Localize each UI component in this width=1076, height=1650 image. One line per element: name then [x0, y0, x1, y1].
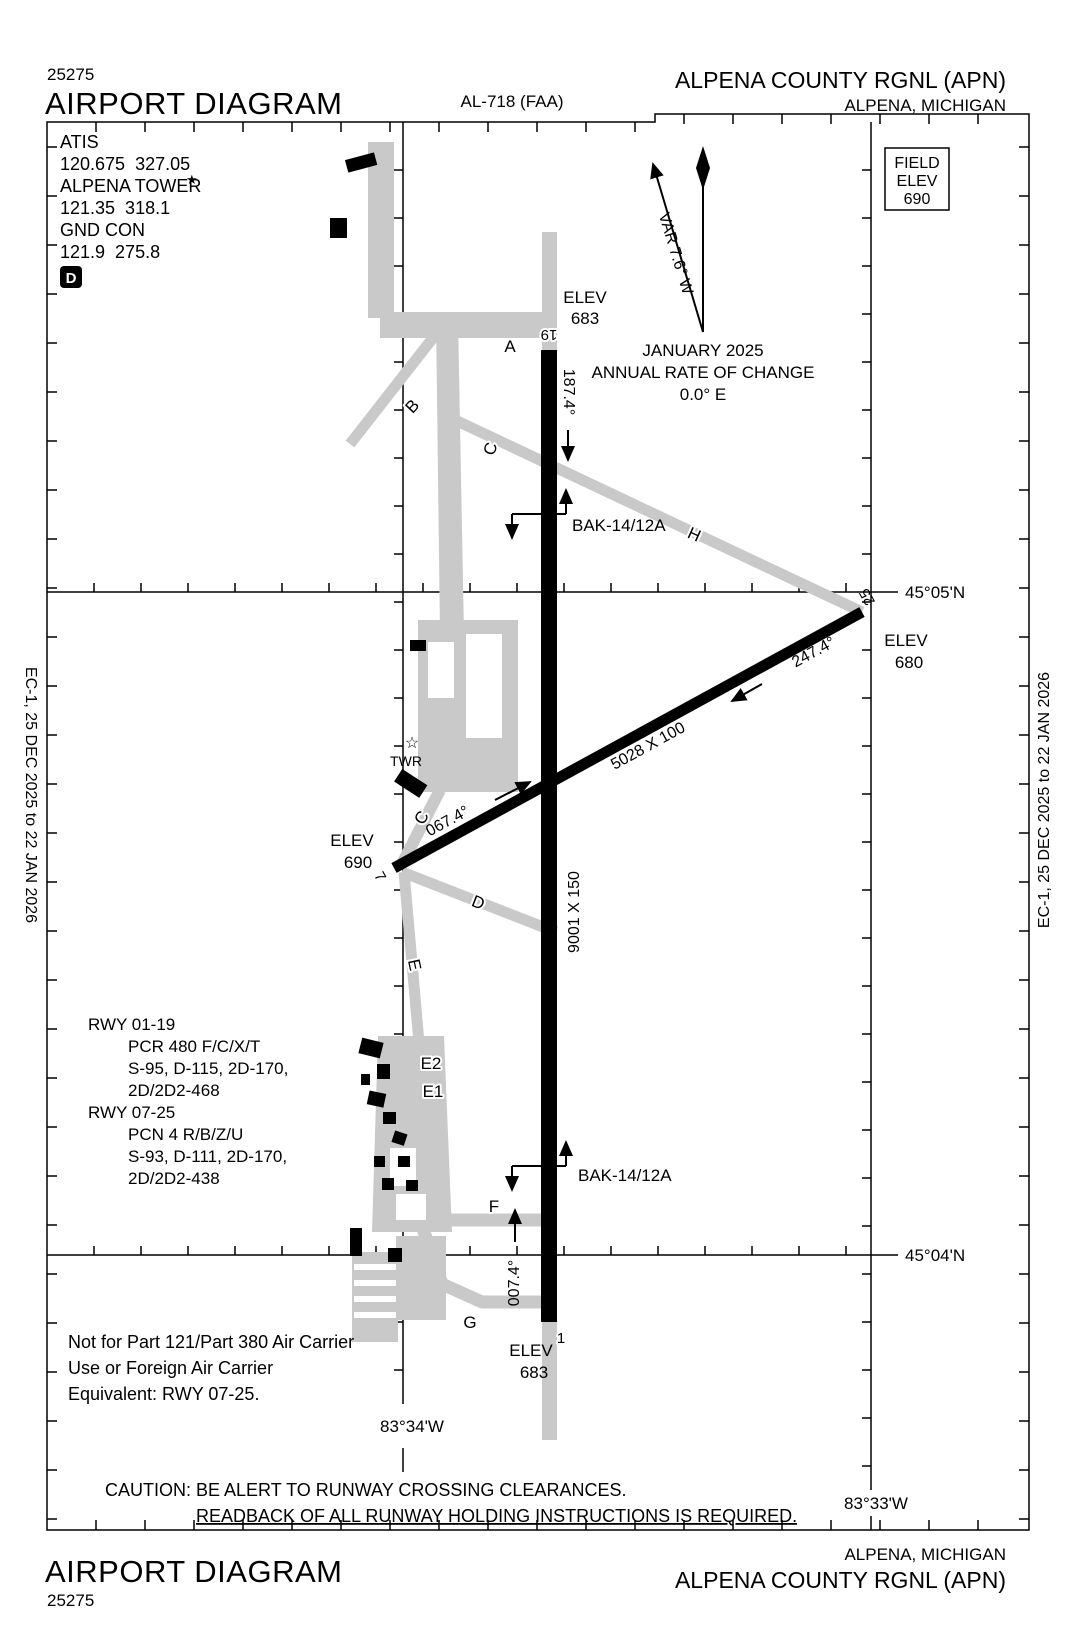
hangar-gap: [354, 1296, 396, 1302]
runway-19-heading: 187.4°: [560, 369, 577, 415]
chart-number-bottom: 25275: [47, 1591, 94, 1610]
procedure-id: AL-718 (FAA): [461, 92, 564, 111]
building: [398, 1156, 410, 1167]
compass-rate-value: 0.0° E: [680, 385, 727, 404]
runway-01-heading: 007.4°: [506, 1260, 523, 1306]
hangar-gap: [354, 1264, 396, 1270]
tower-star-icon: ★: [186, 172, 198, 187]
apron-cutout: [428, 642, 454, 698]
arresting-gear-north-symbol: [512, 490, 566, 538]
runway-01-19: [541, 350, 557, 1322]
taxiway-b-label: B: [402, 396, 424, 417]
airport-diagram-canvas: 25275 AIRPORT DIAGRAM AL-718 (FAA) ALPEN…: [0, 0, 1076, 1650]
elev-north-label: ELEV: [563, 288, 607, 307]
hangar-gap: [354, 1280, 396, 1286]
taxiway-pavement: [350, 142, 862, 1440]
tower-label: ALPENA TOWER: [60, 176, 201, 196]
restriction-line: Not for Part 121/Part 380 Air Carrier: [68, 1332, 354, 1352]
airport-diagram-page: 25275 AIRPORT DIAGRAM AL-718 (FAA) ALPEN…: [0, 0, 1076, 1650]
elev-west-value: 690: [344, 853, 372, 872]
rwy-07-25-data-line: 2D/2D2-438: [128, 1169, 220, 1188]
rwy-01-19-data-label: RWY 01-19: [88, 1015, 175, 1034]
apron-cutout: [396, 1194, 426, 1220]
rwy-01-19-data-line: S-95, D-115, 2D-170,: [128, 1059, 288, 1078]
page-title: AIRPORT DIAGRAM: [45, 86, 342, 121]
city-state-bottom: ALPENA, MICHIGAN: [844, 1545, 1006, 1564]
taxiway-e2-label: E2: [421, 1054, 442, 1073]
longitude-east-label: 83°33'W: [844, 1494, 908, 1513]
taxiway-e1-label: E1: [423, 1082, 444, 1101]
taxiway-a-label: A: [504, 337, 516, 356]
rwy-07-25-data-line: PCN 4 R/B/Z/U: [128, 1125, 243, 1144]
compass-date: JANUARY 2025: [642, 341, 763, 360]
building: [350, 1228, 362, 1256]
true-north-arrowhead-icon: [696, 146, 710, 190]
magnetic-variation-label: VAR 7.6° W: [655, 211, 696, 297]
tower-frequencies: 121.35 318.1: [60, 198, 170, 218]
building: [330, 218, 347, 238]
airport-name-bottom: ALPENA COUNTY RGNL (APN): [675, 1567, 1006, 1593]
elev-north-value: 683: [571, 309, 599, 328]
runway-7-number: 7: [370, 869, 389, 885]
notam-d-letter: D: [66, 270, 77, 287]
atis-frequencies: 120.675 327.05: [60, 154, 190, 174]
edition-note-right: EC-1, 25 DEC 2025 to 22 JAN 2026: [1036, 672, 1053, 928]
runway-1-number: 1: [557, 1330, 565, 1347]
runway-19-number: 19: [541, 326, 558, 343]
arresting-gear-north-label: BAK-14/12A: [572, 516, 666, 535]
building: [361, 1074, 370, 1085]
building: [377, 1064, 390, 1079]
caution-note: CAUTION: BE ALERT TO RUNWAY CROSSING CLE…: [105, 1480, 626, 1500]
rwy-07-25-data-label: RWY 07-25: [88, 1103, 175, 1122]
parallel-taxiway-north: [436, 318, 464, 634]
field-elevation-value: 690: [904, 191, 931, 208]
building: [406, 1180, 418, 1191]
rwy-01-19-data-line: 2D/2D2-468: [128, 1081, 220, 1100]
taxiway-f-label: F: [489, 1197, 499, 1216]
building: [388, 1248, 402, 1262]
elev-west-label: ELEV: [330, 831, 374, 850]
tower-star-icon: ☆: [405, 735, 419, 752]
building: [382, 1178, 394, 1190]
field-elevation-box: FIELD ELEV 690: [885, 148, 949, 210]
hangar-gap: [354, 1312, 396, 1318]
compass-rate-label: ANNUAL RATE OF CHANGE: [592, 363, 815, 382]
apron-cutout: [466, 634, 502, 738]
restriction-note: Not for Part 121/Part 380 Air Carrier Us…: [68, 1332, 354, 1404]
elev-east-label: ELEV: [884, 631, 928, 650]
arresting-gear-south-symbol: [512, 1142, 566, 1190]
building: [410, 640, 426, 651]
taxiway-a-pavement: [380, 312, 542, 338]
elev-south-label: ELEV: [509, 1341, 553, 1360]
atis-label: ATIS: [60, 132, 99, 152]
rwy-01-19-data-line: PCR 480 F/C/X/T: [128, 1037, 260, 1056]
building: [374, 1156, 385, 1167]
field-elevation-line1: FIELD: [894, 155, 939, 172]
city-state-top: ALPENA, MICHIGAN: [844, 96, 1006, 115]
taxiway-b-pavement: [350, 334, 436, 444]
airport-name-top: ALPENA COUNTY RGNL (APN): [675, 67, 1006, 93]
north-arrows: [653, 146, 710, 332]
latitude-south-label: 45°04'N: [905, 1246, 965, 1265]
elev-south-value: 683: [520, 1363, 548, 1382]
field-elevation-line2: ELEV: [897, 173, 938, 190]
runway-01-19-dimensions: 9001 X 150: [566, 871, 583, 953]
longitude-west-label: 83°34'W: [380, 1417, 444, 1436]
latitude-north-label: 45°05'N: [905, 583, 965, 602]
edition-note-left: EC-1, 25 DEC 2025 to 22 JAN 2026: [22, 667, 39, 923]
readback-note: READBACK OF ALL RUNWAY HOLDING INSTRUCTI…: [196, 1506, 797, 1526]
restriction-line: Use or Foreign Air Carrier: [68, 1358, 273, 1378]
elev-east-value: 680: [895, 653, 923, 672]
south-apron-lower: [396, 1236, 446, 1320]
rwy-07-25-data-line: S-93, D-111, 2D-170,: [128, 1147, 287, 1166]
tower-label: TWR: [390, 753, 422, 769]
taxiway-g-label: G: [463, 1313, 476, 1332]
chart-number-top: 25275: [47, 65, 94, 84]
page-title-bottom: AIRPORT DIAGRAM: [45, 1554, 342, 1589]
comms-block: ATIS 120.675 327.05 ALPENA TOWER ★ 121.3…: [60, 132, 201, 288]
north-apron: [368, 142, 394, 318]
arresting-gear-south-label: BAK-14/12A: [578, 1166, 672, 1185]
ground-control-label: GND CON: [60, 220, 145, 240]
runway-data-block: RWY 01-19 PCR 480 F/C/X/T S-95, D-115, 2…: [88, 1015, 288, 1188]
restriction-line: Equivalent: RWY 07-25.: [68, 1384, 259, 1404]
ground-frequencies: 121.9 275.8: [60, 242, 160, 262]
building: [383, 1112, 396, 1124]
